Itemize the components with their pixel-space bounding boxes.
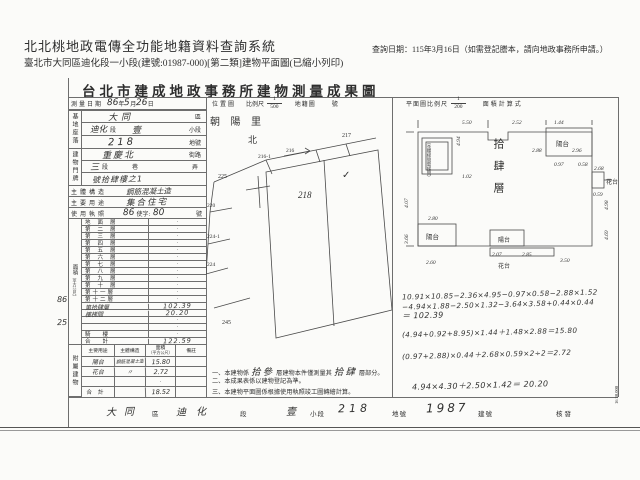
site-district-row: 大同 區 [82,110,206,123]
margin-note-25: 25 [57,318,67,327]
floor-row-total: 合計122.59 [82,338,206,345]
calc-line-4: (4.94+0.92+8.95)×1.44＋1.48×2.88＝15.80 [402,326,578,341]
district-value: 大同 [108,109,134,123]
note-number: 三、 [212,389,224,396]
check-mark: ✓ [342,170,350,181]
street-value: 重慶北 [102,148,135,162]
floor-plan-sketch: 5.50 2.52 1.44 2.96 4.98 0.58 0.97 2.88 … [396,112,618,272]
floor-value: · [148,317,206,323]
section-suffix: 段 [110,125,116,134]
door-street-row: 重慶北 街路 [82,149,206,161]
document-subtitle: 臺北市大同區迪化段一小段(建號:01987-000)[第二類]建物平面圖(已縮小… [24,55,343,69]
location-map-header: 位置圖 比例尺 1 500 地籍圖 號 [206,97,392,110]
footer-building-label: 建號 [478,408,493,418]
plan-flower-right-outline [592,172,604,188]
day-unit: 日 [148,99,154,108]
annex-structure: 鋼筋混凝土造 [114,357,145,367]
annex-use: 合計 [82,388,114,396]
plan-balcony-bc-label: 陽台 [498,236,510,244]
footer-lot-label: 地號 [392,408,407,418]
license-number: 80 [153,208,165,218]
survey-date-label: 測量日期 [68,99,103,108]
street-suffix: 街路 [189,150,206,159]
annex-area: 15.80 [145,357,176,367]
footer-section-label: 段 [240,408,247,418]
subsection-value: 壹 [132,122,141,135]
floor-row-blank-1: · [82,317,206,324]
survey-day-value: 26 [136,98,148,108]
license-mid: 使字: [136,209,150,218]
survey-date-row: 測量日期 86 年 5 月 26 日 [68,97,206,110]
left-boundary-line [206,182,214,274]
usage-row: 主要用途 集合住宅 [68,197,206,208]
calc-line-5: (0.97+2.88)×0.44＋2.68×0.59×2÷2＝2.72 [402,348,571,362]
annex-col-area-2: （平方公尺） [149,351,173,355]
page-rule-2 [0,430,640,431]
dim-2-60: 2.60 [426,260,436,266]
floor-total-hand: 122.59 [148,337,206,345]
annex-row-flowerbed: 花台 〃 2.72 [82,367,206,377]
dim-0-58: 0.58 [578,162,588,168]
footer-building-value: 1987 [426,400,469,415]
note-number: 二、 [212,378,224,385]
floor-value: · [148,240,206,246]
dim-1-44: 1.44 [554,119,564,126]
door-section-row: 三 段 巷 弄 [82,161,206,173]
parcel-216-1-label: 216-1 [258,154,271,160]
license-label: 使用執照 [68,209,123,218]
lot-value: 218 [108,136,136,148]
calc-line-3: ＝ 102.39 [402,309,444,321]
scale-denominator: 500 [267,104,282,111]
print-run-code: 16 30,000 [614,386,619,404]
query-date: 查詢日期：115年3月16日（如需登記謄本，請向地政事務所申請。） [372,44,608,55]
annex-use: 陽台 [82,357,114,367]
calc-line-6: 4.94×4.30＋2.50×1.42＝ 20.20 [412,378,549,393]
usage-value: 集合住宅 [126,195,168,208]
dim-5-50: 5.50 [462,120,472,126]
alley-label: 弄 [192,162,206,171]
dim-4-69: 4.69 [603,230,610,240]
annex-group-label: 附屬建物 [68,345,82,397]
lane-label: 巷 [132,162,138,171]
district-suffix: 區 [195,112,206,121]
annex-note [175,357,206,366]
dim-3-66: 3.66 [404,234,410,245]
parcel-218-label: 218 [298,190,312,200]
dim-2-80: 2.80 [428,216,438,222]
sheet-number-label: 號 [332,99,338,108]
note-text: 本建物平面圖係根據使用執照竣工圖轉繪計算。 [224,389,354,396]
footer-subsection-label: 小段 [310,408,325,418]
site-section-row: 迪化 段 壹 小段 [82,123,206,136]
plan-flower-right-label: 花台 [606,178,618,186]
road-boundary-line [214,138,376,182]
location-map-lines [206,138,392,338]
plan-floor-label-14f: 拾肆層 [490,138,506,204]
door-section-value: 三 [90,160,99,173]
door-section-suffix: 段 [102,162,108,171]
lot-suffix: 地號 [189,138,206,147]
annex-structure [114,387,145,397]
dim-2-96: 2.96 [572,148,582,154]
dim-2-52: 2.52 [512,120,522,126]
parcel-220-label: 220 [207,203,216,209]
page-rule-1 [0,427,640,428]
plan-scale-denominator: 200 [451,104,466,111]
structure-label: 主體構造 [68,187,126,196]
area-group-title: 面積 [71,264,79,275]
annex-structure: 〃 [114,367,145,377]
annex-area: 18.52 [145,387,176,398]
plan-flower-bottom-label: 花台 [498,262,510,270]
plan-scale-header: 平面圖比例尺 1 200 面積計算式 [392,97,618,110]
floor-value: · [148,261,206,267]
cadastral-map-label: 地籍圖 [295,99,316,108]
footer-district-value: 大同 [106,403,142,419]
floor-label: 合計 [82,337,148,345]
scanned-survey-document-page: 北北桃地政電傳全功能地籍資料查詢系統 查詢日期：115年3月16日（如需登記謄本… [0,0,640,480]
survey-year-value: 86 [107,98,119,108]
area-calc-label: 面積計算式 [483,99,523,108]
parcel-216-label: 216 [286,148,295,154]
license-suffix: 號 [196,209,206,218]
location-scale-label: 比例尺 [246,99,264,108]
plan-balcony-bl-label: 陽台 [426,232,439,241]
usage-label: 主要用途 [68,198,126,207]
location-scale-fraction: 1 500 [267,97,282,111]
dim-2-88: 2.88 [532,148,542,154]
annex-structure [114,377,145,386]
door-number-value: 號拾肆樓之1 [92,173,143,185]
north-label: 北 [248,135,257,145]
floor-value: · [148,275,206,281]
note-line-3: 三、本建物平面圖係根據使用執照竣工圖轉繪計算。 [212,387,354,396]
floor-value: · [148,254,206,260]
dim-3-50: 3.50 [559,258,570,264]
plan-scale-fraction: 1 200 [451,97,466,111]
annex-area: 2.72 [145,367,176,377]
annex-col-structure: 主體構造 [114,345,145,356]
annex-note [175,387,206,397]
floor-value: · [148,282,206,288]
divider-middle-right [392,97,393,397]
site-lot-row: 218 地號 [82,136,206,149]
license-year: 86 [123,208,135,218]
plan-balcony-tr-label: 陽台 [556,139,569,148]
plan-stairwell-note: （含樓梯間電梯間） [426,140,432,186]
annex-col-area: 面積 （平方公尺） [145,345,176,356]
village-label: 朝 陽 里 [210,116,265,128]
note-line-2: 二、本成果表係以建物登記為準。 [212,376,305,385]
floor-value: · [148,268,206,274]
annex-row-blank: · [82,377,206,387]
annex-col-use: 主要用途 [82,347,114,354]
parcel-217-label: 217 [342,133,351,139]
parcel-245-label: 245 [222,320,231,326]
dim-4-98: 4.98 [603,200,610,210]
margin-note-86: 86 [57,295,67,304]
survey-month-value: 5 [124,98,130,108]
door-number-row: 號拾肆樓之1 [82,173,206,186]
dim-2-68: 2.68 [594,166,604,172]
floor-value: · [148,289,206,295]
annex-use: 花台 [82,367,114,377]
floor-value: · [148,247,206,253]
footer-issue-label: 核發 [556,408,573,418]
plan-scale-numerator: 1 [451,97,466,105]
site-group-label: 基地座落 [68,110,82,149]
area-group-unit: （平方公尺） [72,275,78,299]
footer-lot-value: 218 [338,402,371,416]
floor-value: · [148,324,206,330]
subsection-suffix: 小段 [189,125,206,134]
scale-numerator: 1 [267,97,282,105]
section-value: 迪化 [90,123,107,135]
parcel-225-label: 225 [218,174,227,180]
note-hand-14f: 拾肆 [334,367,357,378]
annex-row-balcony: 陽台 鋼筋混凝土造 15.80 [82,357,206,367]
location-map-label: 位置圖 [206,99,236,108]
parcel-224-1-label: 224-1 [207,234,220,240]
dim-4-07: 4.07 [403,198,410,208]
bottom-boundary-line [214,298,250,308]
floor-value: · [148,219,206,225]
dim-0-59: 0.59 [593,192,603,198]
floor-row-stairwell: 樓梯間20.20 [82,310,206,317]
note-text: 層部分。 [359,370,384,377]
form-right-border [618,97,619,397]
annex-header-row: 主要用途 主體構造 面積 （平方公尺） 備註 [82,345,206,357]
floor-value: · [148,226,206,232]
footer-section-value: 迪化 [176,402,216,418]
area-group-label: 面積 （平方公尺） [68,219,82,345]
dim-1-02: 1.02 [462,174,472,180]
footer-district-label: 區 [152,408,159,418]
dim-4-94: 4.94 [455,136,462,146]
annex-col-note: 備註 [175,345,206,356]
annex-note [175,377,206,386]
dim-2-07: 2.07 [492,252,502,258]
door-group-label: 建物門牌 [68,149,82,186]
floor-value: · [148,233,206,239]
parcel-224-label: 224 [207,262,216,268]
system-title: 北北桃地政電傳全功能地籍資料查詢系統 [24,36,276,55]
plan-scale-label: 平面圖比例尺 [392,99,448,108]
parcel-internal-line [324,160,334,326]
annex-note [175,367,206,376]
floor-value-hand: 20.20 [148,309,206,317]
dim-2-85: 2.85 [522,252,532,258]
note-text: 本成果表係以建物登記為準。 [224,378,304,385]
annex-area: · [145,377,176,386]
annex-row-total: 合計 18.52 [82,387,206,397]
location-map-sketch: 朝 陽 里 北 225 216-1 216 217 220 224-1 224 … [206,112,392,358]
footer-subsection-value: 壹 [286,403,296,418]
dim-0-97: 0.97 [554,162,564,168]
